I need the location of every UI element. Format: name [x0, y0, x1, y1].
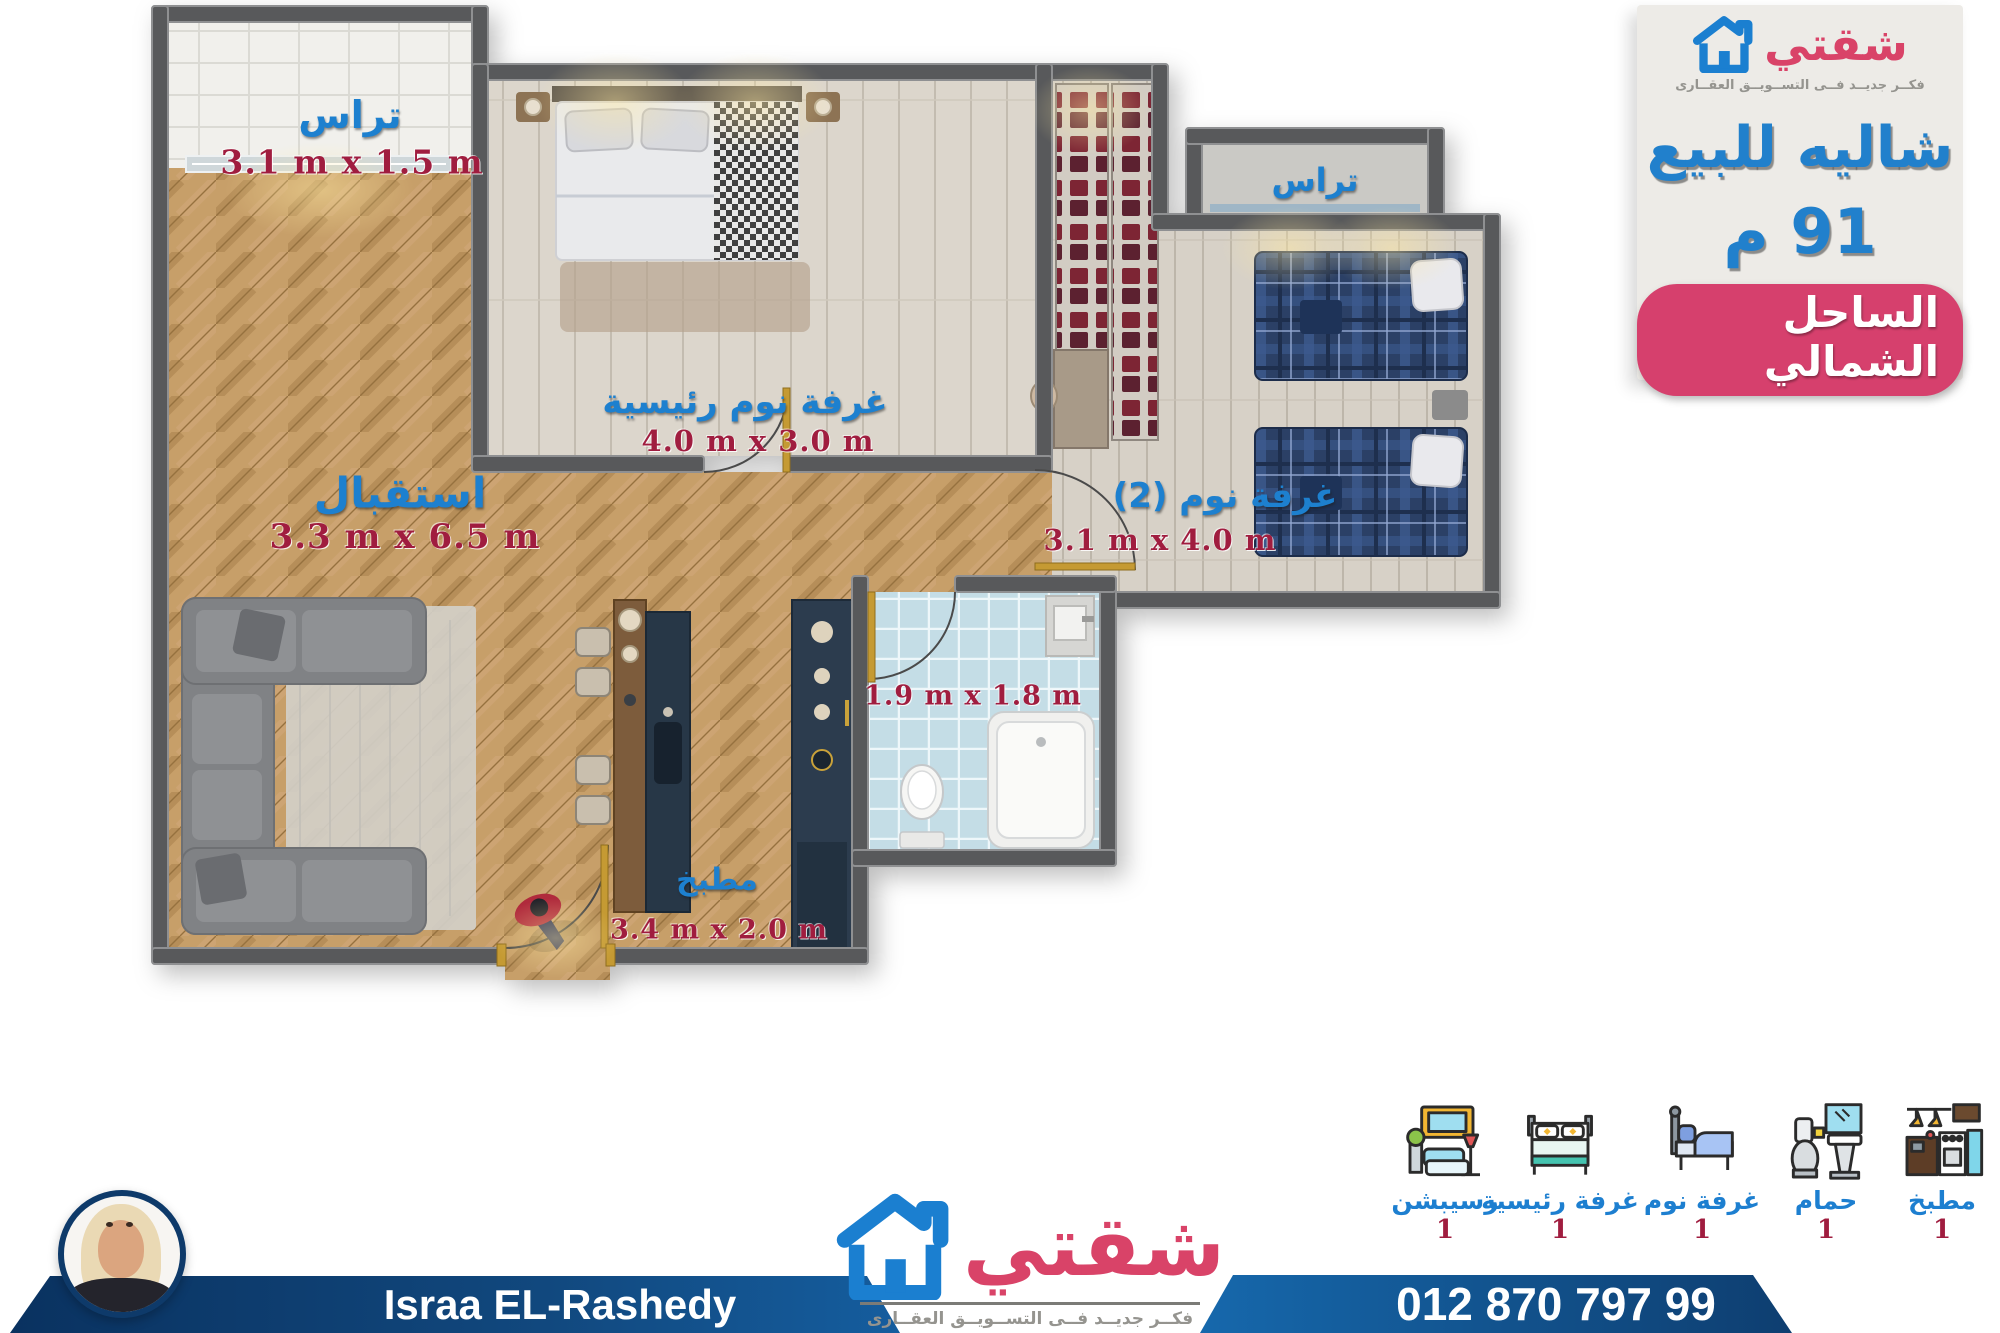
- legend-count: 1: [1551, 1215, 1569, 1245]
- legend-count: 1: [1436, 1215, 1454, 1245]
- legend-item-bathroom: حمام 1: [1760, 1100, 1892, 1245]
- reception-dims: 3.3 m x 6.5 m: [270, 517, 541, 557]
- single-bed-icon: [1660, 1100, 1744, 1184]
- listing-panel: شقتي فكــر جديــد فــى التســويــق العقـ…: [1637, 5, 1963, 380]
- legend-item-master-room: غرفة رئيسية 1: [1494, 1100, 1626, 1245]
- phone-banner: 012 870 797 99: [1200, 1275, 1792, 1333]
- agent-name: Israa EL-Rashedy: [384, 1281, 737, 1329]
- avatar-face: [98, 1220, 144, 1278]
- listing-area: 91 م: [1723, 195, 1876, 268]
- location-badge: الساحل الشمالي: [1637, 284, 1963, 396]
- bathroom-icon: [1784, 1100, 1868, 1184]
- legend-item-bedroom: غرفة نوم 1: [1636, 1100, 1768, 1245]
- terrace-top-left-dims: 3.1 m x 1.5 m: [220, 143, 483, 182]
- legend-label: غرفة نوم: [1644, 1186, 1760, 1215]
- legend-count: 1: [1693, 1215, 1711, 1245]
- bathroom-dims: 1.9 m x 1.8 m: [864, 681, 1082, 712]
- footer-brand-logo: شقتي فكــر جديــد فــى التســويــق العقـ…: [830, 1192, 1230, 1329]
- avatar-eye: [106, 1222, 113, 1227]
- master-bedroom-dims: 4.0 m x 3.0 m: [642, 424, 875, 458]
- kitchen-dims: 3.4 m x 2.0 m: [610, 915, 828, 946]
- reception-label: استقبال: [314, 469, 486, 518]
- brand-name: شقتي: [963, 1197, 1225, 1295]
- house-icon: [1692, 15, 1756, 73]
- agent-avatar: [58, 1190, 186, 1318]
- bedroom-2-dims: 3.1 m x 4.0 m: [1044, 523, 1277, 557]
- legend-label: حمام: [1795, 1186, 1858, 1215]
- house-icon: [835, 1192, 955, 1300]
- living-room-icon: [1403, 1100, 1487, 1184]
- legend-count: 1: [1933, 1215, 1951, 1245]
- sofa: [182, 598, 476, 934]
- terrace-top-right-label: تراس: [1271, 161, 1358, 199]
- kitchen-label: مطبخ: [676, 863, 758, 898]
- listing-title: شاليه للبيع: [1647, 115, 1954, 181]
- phone-number: 012 870 797 99: [1396, 1277, 1716, 1331]
- legend-count: 1: [1817, 1215, 1835, 1245]
- logo-divider: [860, 1302, 1200, 1305]
- legend-item-reception: رسيبشن 1: [1379, 1100, 1511, 1245]
- master-bed-icon: [1518, 1100, 1602, 1184]
- legend-item-kitchen: مطبخ 1: [1876, 1100, 2000, 1245]
- kitchen-icon: [1900, 1100, 1984, 1184]
- terrace-top-left-label: تراس: [298, 93, 401, 137]
- brand-tagline: فكــر جديــد فــى التســويــق العقــارى: [867, 1309, 1193, 1329]
- legend-label: غرفة رئيسية: [1481, 1186, 1639, 1215]
- brand-name: شقتي: [1764, 17, 1908, 71]
- flyer-page: تراس 3.1 m x 1.5 m غرفة نوم رئيسية 4.0 m…: [0, 0, 2000, 1333]
- master-bedroom-label: غرفة نوم رئيسية: [602, 382, 887, 422]
- brand-tagline: فكــر جديــد فــى التســويــق العقــارى: [1675, 78, 1924, 93]
- avatar-eye: [126, 1222, 133, 1227]
- bedroom-2-label: غرفة نوم (2): [1113, 476, 1338, 516]
- legend-label: مطبخ: [1908, 1186, 1976, 1215]
- brand-logo: شقتي: [1692, 15, 1908, 73]
